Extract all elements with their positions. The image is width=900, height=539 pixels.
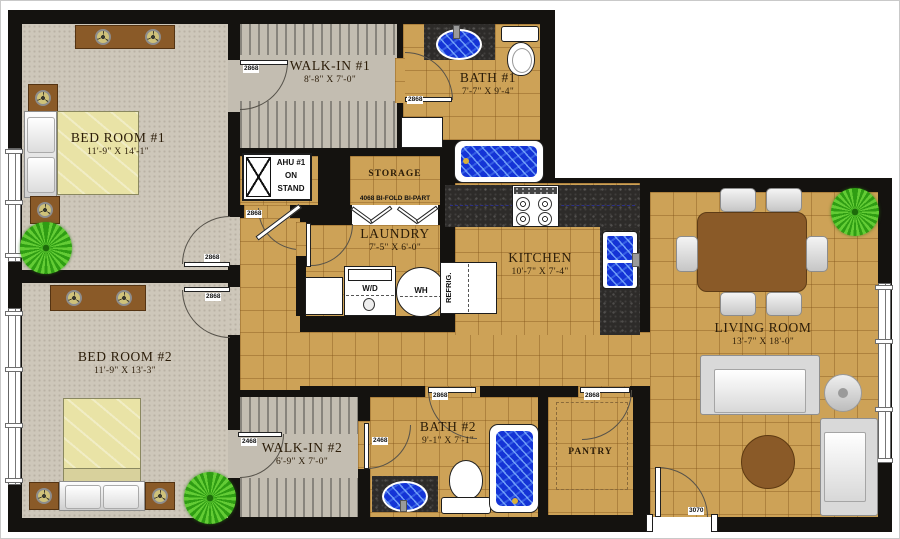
door-size-label: 2868 xyxy=(407,96,423,104)
stove-burner xyxy=(516,212,530,226)
decor-fan xyxy=(66,290,82,306)
dining-chair xyxy=(720,188,756,212)
sofa-cushion xyxy=(714,369,806,413)
side-table-lamp xyxy=(838,388,848,398)
window-tick xyxy=(5,478,23,483)
water-heater-label: WH xyxy=(396,286,446,295)
window-bedroom-2 xyxy=(8,308,21,485)
window-bedroom-1 xyxy=(8,148,21,262)
kitchen-sink-basin xyxy=(606,235,634,261)
window-tick xyxy=(5,367,23,372)
pillow xyxy=(27,157,55,193)
window-tick xyxy=(5,423,23,428)
toilet-2-bowl xyxy=(449,460,483,500)
door-leaf-walkin-2 xyxy=(238,432,282,437)
door-leaf-entry xyxy=(655,467,661,517)
dining-chair xyxy=(676,236,698,272)
refrigerator-door-line xyxy=(468,264,469,312)
door-size-label: 2468 xyxy=(241,438,257,446)
washer-dryer-label: W/D xyxy=(344,284,396,293)
bathtub-1-water xyxy=(461,146,537,177)
door-opening-laundry xyxy=(296,222,306,256)
divider xyxy=(400,296,442,297)
dining-table xyxy=(697,212,807,292)
plant xyxy=(20,222,72,274)
decor-fan xyxy=(35,90,51,106)
armchair-cushion xyxy=(824,432,866,502)
bath-1-linen-cabinet xyxy=(401,117,443,148)
door-size-label: 2868 xyxy=(204,254,220,262)
door-size-label: 2868 xyxy=(432,392,448,400)
ahu-x-symbol xyxy=(246,157,271,197)
dining-chair xyxy=(720,292,756,316)
door-opening-walkin-1 xyxy=(228,60,240,112)
refrigerator-label: REFRIG. xyxy=(444,266,458,310)
divider xyxy=(346,295,394,296)
washer-dryer-valve xyxy=(363,298,375,311)
window-tick xyxy=(5,200,23,205)
door-opening-entry xyxy=(650,517,714,532)
decor-fan xyxy=(145,29,161,45)
washer-dryer-drawer xyxy=(348,269,392,281)
door-leaf-bedroom-2 xyxy=(184,287,230,292)
window-tick xyxy=(875,339,893,344)
drain xyxy=(512,498,518,504)
decor-fan xyxy=(116,290,132,306)
kitchen-sink-basin xyxy=(606,262,634,287)
decor-fan xyxy=(37,202,53,218)
stove-burner xyxy=(538,212,552,226)
toilet-2-tank xyxy=(441,497,491,514)
pillow xyxy=(65,485,101,509)
faucet xyxy=(453,25,460,39)
door-leaf-bath-2-inner xyxy=(364,423,369,469)
door-jamb xyxy=(646,514,653,532)
dining-chair xyxy=(766,188,802,212)
bed-2-fold xyxy=(64,468,140,481)
window-living-room xyxy=(878,283,891,463)
door-leaf-laundry xyxy=(306,223,311,267)
plant xyxy=(184,472,236,524)
door-size-label: 2868 xyxy=(205,293,221,301)
floor-plan: AHU #1 ON STAND W/D WH REFRIG. xyxy=(0,0,900,539)
door-size-label: 2868 xyxy=(584,392,600,400)
faucet xyxy=(400,500,407,512)
stove-burner xyxy=(538,197,552,211)
door-size-label: 2468 xyxy=(372,437,388,445)
laundry-tub xyxy=(305,277,343,315)
pillow xyxy=(27,117,55,153)
toilet-1-tank xyxy=(501,26,539,42)
window-tick xyxy=(5,311,23,316)
door-opening-walkin-2 xyxy=(228,430,240,478)
faucet xyxy=(632,253,640,267)
plant xyxy=(831,188,879,236)
stove-controls xyxy=(514,187,557,194)
floor-corridor xyxy=(240,332,650,386)
stove-burner xyxy=(516,197,530,211)
window-tick xyxy=(5,149,23,154)
door-jamb xyxy=(711,514,718,532)
window-tick xyxy=(875,285,893,290)
label-bifold-door: 4068 BI-FOLD BI-PART xyxy=(346,195,444,202)
decor-fan xyxy=(95,29,111,45)
bathtub-2-water xyxy=(496,431,533,506)
door-opening-bath-1 xyxy=(395,58,405,103)
door-size-label: 3070 xyxy=(688,507,704,515)
window-tick xyxy=(875,407,893,412)
decor-fan xyxy=(36,488,52,504)
coffee-table xyxy=(741,435,795,489)
bed-1 xyxy=(57,111,139,195)
ahu-label: AHU #1 ON STAND xyxy=(271,156,311,198)
door-leaf-bedroom-1 xyxy=(184,262,230,267)
decor-fan xyxy=(152,488,168,504)
pillow xyxy=(103,485,139,509)
door-size-label: 2868 xyxy=(246,210,262,218)
door-size-label: 2868 xyxy=(243,65,259,73)
dining-chair xyxy=(766,292,802,316)
toilet-1-seat xyxy=(512,48,532,73)
drain xyxy=(463,158,469,164)
dining-chair xyxy=(806,236,828,272)
